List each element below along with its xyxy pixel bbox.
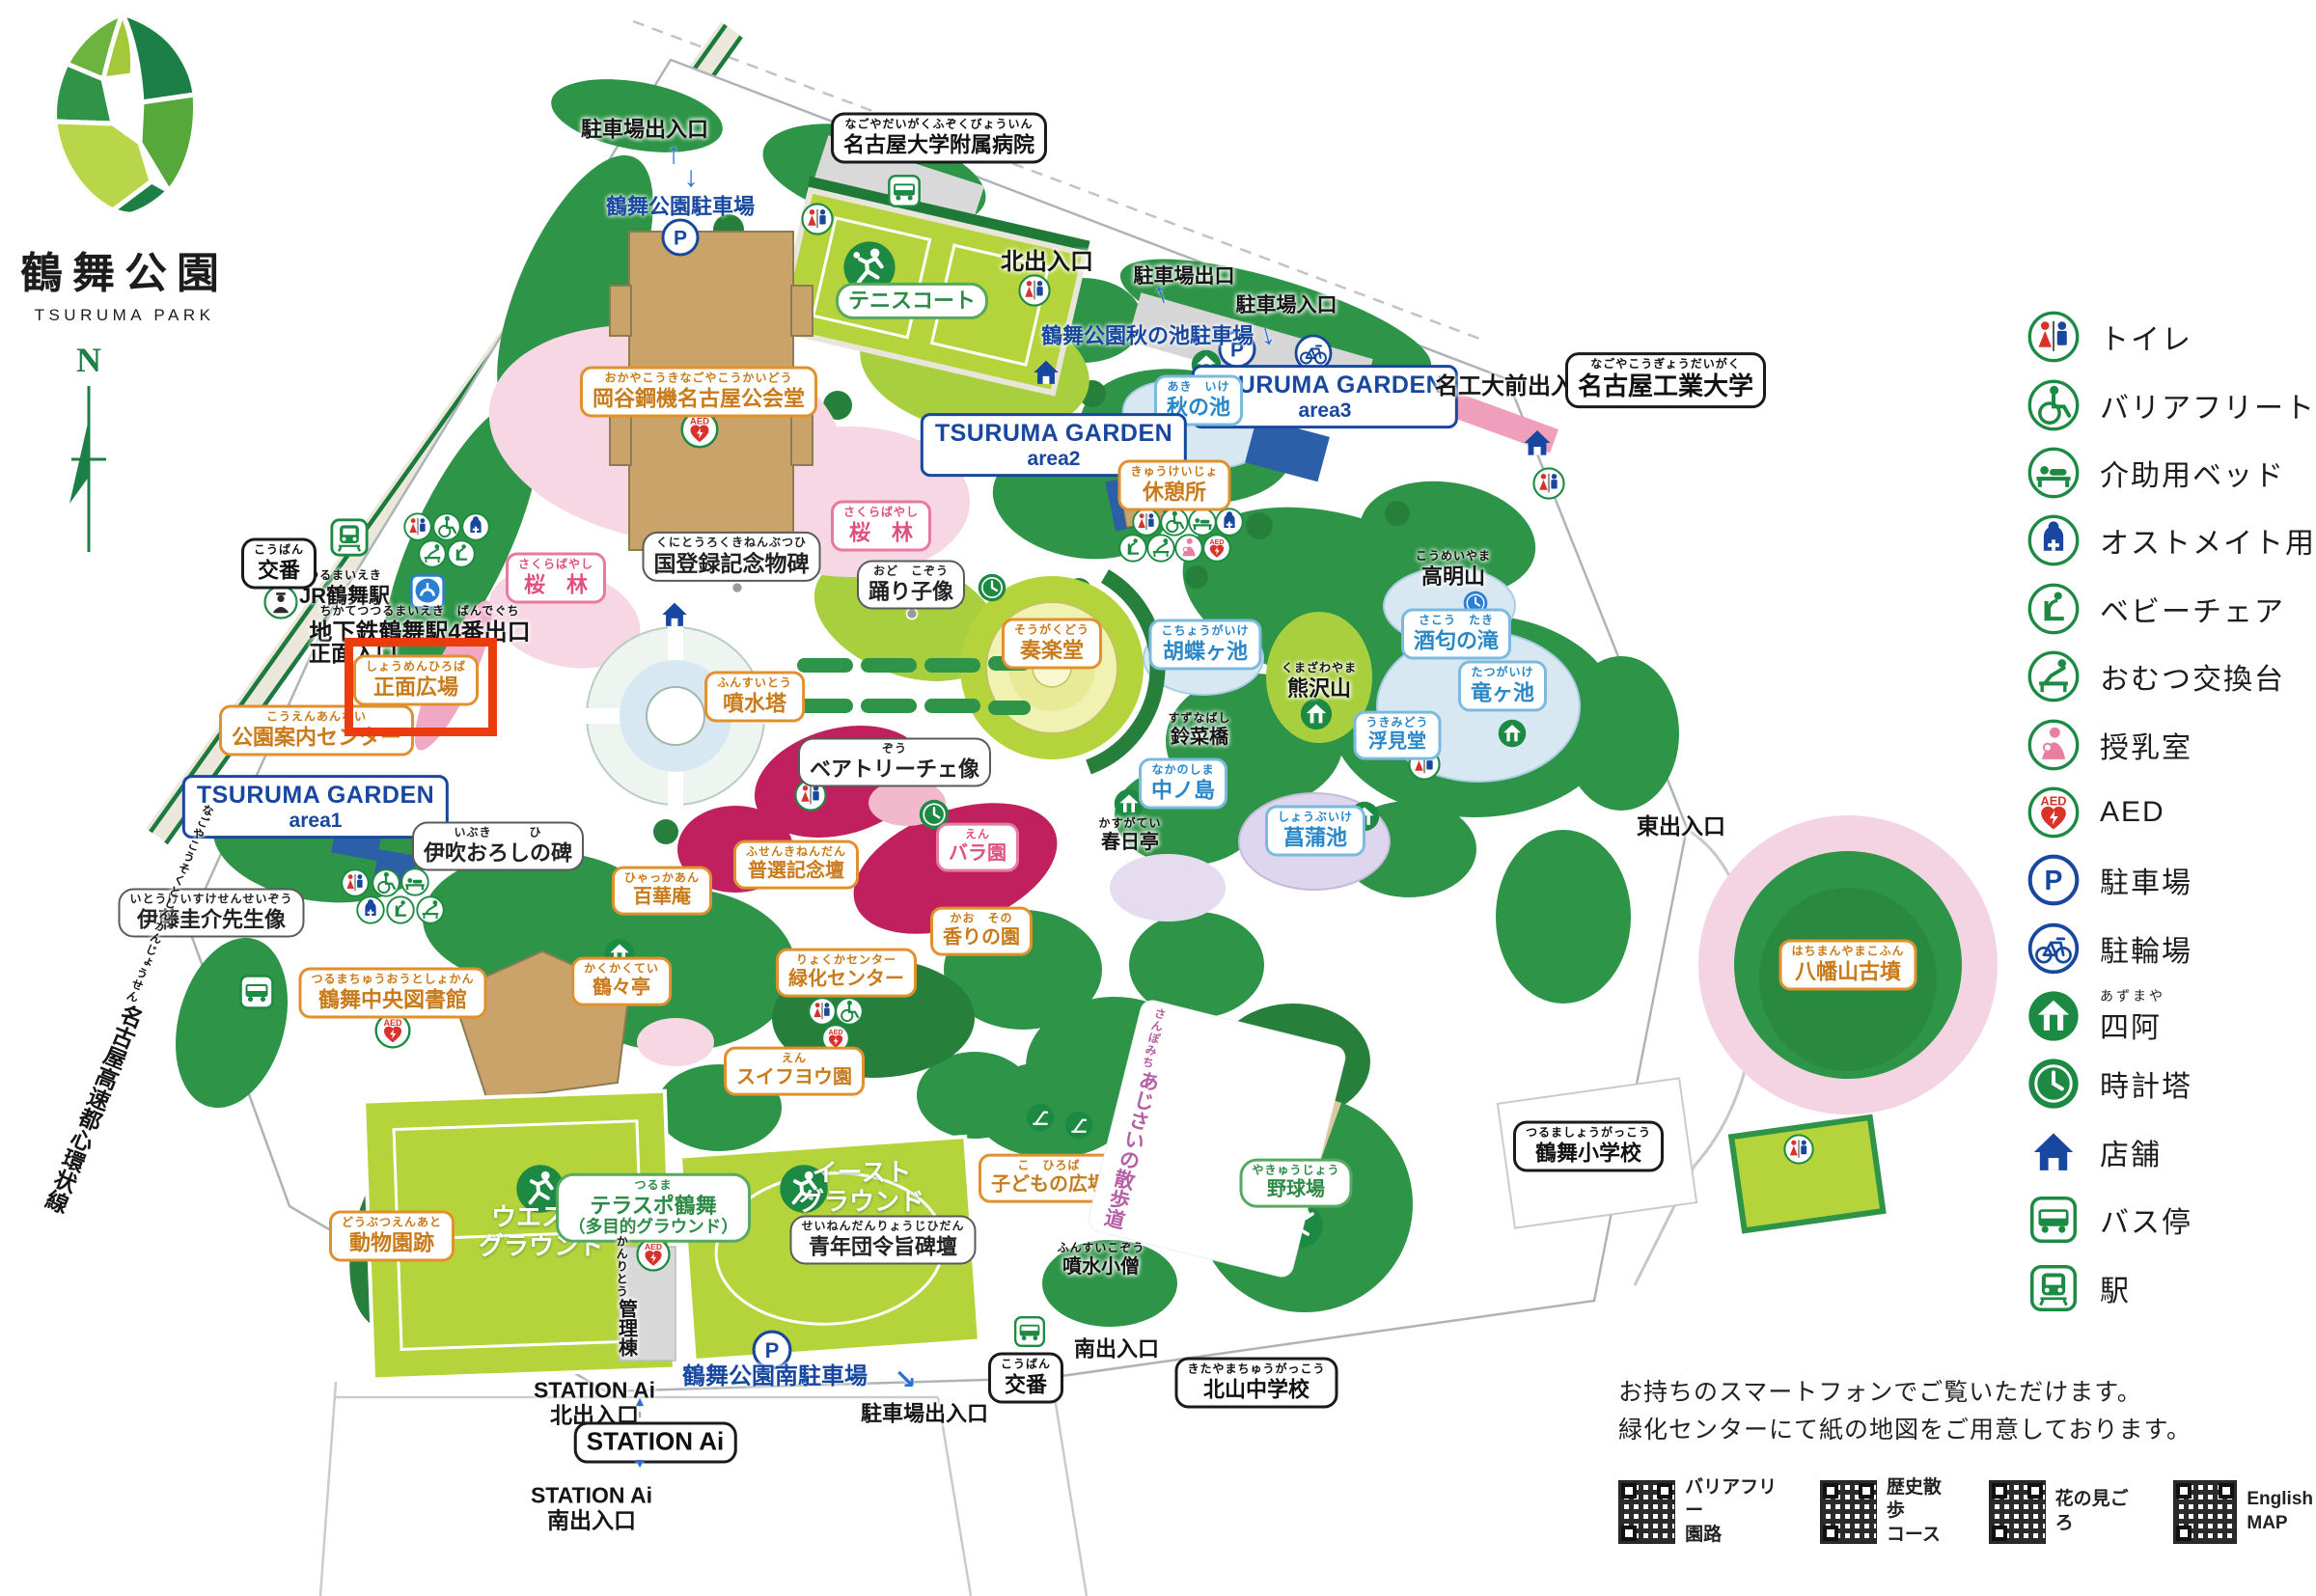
legend-label: 駐車場 bbox=[2100, 859, 2192, 901]
qr-label: バリアフリー 園路 bbox=[1685, 1476, 1783, 1548]
qr-item: 歴史散歩 コース bbox=[1820, 1476, 1952, 1548]
bus-icon bbox=[2026, 1193, 2081, 1247]
legend-item-shop: 店舗 bbox=[2026, 1118, 2316, 1186]
park-map-background bbox=[0, 0, 2316, 1596]
park-title-jp: 鶴舞公園 bbox=[14, 238, 235, 300]
legend: トイレバリアフリートイレ介助用ベッドオストメイト用設備ベビーチェアおむつ交換台授… bbox=[2026, 303, 2316, 1322]
legend-label: バリアフリートイレ bbox=[2100, 384, 2316, 427]
legend-label: 駅 bbox=[2100, 1267, 2131, 1309]
legend-label: 時計塔 bbox=[2100, 1062, 2192, 1105]
compass-north-label: N bbox=[50, 340, 127, 380]
parking-icon: P bbox=[2026, 853, 2081, 907]
legend-label: AED bbox=[2100, 796, 2165, 829]
compass-needle-icon bbox=[50, 380, 127, 559]
legend-item-azumaya: あずまや四阿 bbox=[2026, 982, 2316, 1050]
diaper-icon bbox=[2026, 649, 2081, 703]
legend-label: 駐輪場 bbox=[2100, 927, 2192, 970]
train-icon bbox=[2026, 1261, 2081, 1315]
legend-item-train: 駅 bbox=[2026, 1253, 2316, 1321]
legend-label: オストメイト用設備 bbox=[2100, 519, 2316, 562]
aed-icon: AED bbox=[2026, 785, 2081, 839]
footer-notes: お持ちのスマートフォンでご覧いただけます。 緑化センターにて紙の地図をご用意して… bbox=[1618, 1374, 2313, 1548]
legend-item-toilet: トイレ bbox=[2026, 303, 2316, 371]
legend-item-nursing: 授乳室 bbox=[2026, 710, 2316, 778]
leaf-logo-icon bbox=[45, 8, 205, 220]
clock-icon bbox=[2026, 1057, 2081, 1111]
footer-note-2: 緑化センターにて紙の地図をご用意しております。 bbox=[1618, 1412, 2313, 1449]
legend-label: 店舗 bbox=[2100, 1131, 2162, 1173]
qr-code-icon bbox=[2173, 1480, 2237, 1544]
legend-item-bicycle: 駐輪場 bbox=[2026, 915, 2316, 982]
azumaya-icon bbox=[2026, 989, 2081, 1043]
footer-note-1: お持ちのスマートフォンでご覧いただけます。 bbox=[1618, 1374, 2313, 1412]
legend-label: おむつ交換台 bbox=[2100, 655, 2285, 698]
legend-item-parking: P駐車場 bbox=[2026, 846, 2316, 914]
qr-code-icon bbox=[1989, 1480, 2046, 1544]
park-map-page: 鶴舞公園 TSURUMA PARK N トイレバリアフリートイレ介助用ベッドオス… bbox=[0, 0, 2316, 1596]
legend-label: トイレ bbox=[2100, 316, 2192, 358]
legend-label: ベビーチェア bbox=[2100, 588, 2285, 630]
park-title-en: TSURUMA PARK bbox=[14, 306, 235, 325]
toilet-icon bbox=[2026, 310, 2081, 364]
qr-row: バリアフリー 園路歴史散歩 コース花の見ごろEnglish MAP bbox=[1618, 1476, 2313, 1548]
legend-item-bus: バス停 bbox=[2026, 1186, 2316, 1253]
nursing-icon bbox=[2026, 718, 2081, 772]
qr-item: バリアフリー 園路 bbox=[1618, 1476, 1783, 1548]
legend-item-wheelchair: バリアフリートイレ bbox=[2026, 371, 2316, 438]
legend-item-diaper: おむつ交換台 bbox=[2026, 643, 2316, 710]
park-logo: 鶴舞公園 TSURUMA PARK bbox=[14, 8, 235, 325]
legend-item-clock: 時計塔 bbox=[2026, 1050, 2316, 1117]
legend-item-bed: 介助用ベッド bbox=[2026, 439, 2316, 507]
legend-item-babychair: ベビーチェア bbox=[2026, 575, 2316, 643]
legend-label: 授乳室 bbox=[2100, 724, 2192, 766]
ostomate-icon bbox=[2026, 513, 2081, 567]
qr-label: 歴史散歩 コース bbox=[1887, 1476, 1952, 1548]
legend-label: あずまや四阿 bbox=[2100, 986, 2165, 1046]
qr-item: English MAP bbox=[2173, 1480, 2313, 1544]
bicycle-icon bbox=[2026, 922, 2081, 976]
compass: N bbox=[50, 340, 127, 564]
shop-icon bbox=[2026, 1125, 2081, 1179]
qr-label: English MAP bbox=[2247, 1488, 2313, 1535]
svg-text:P: P bbox=[2045, 866, 2063, 896]
qr-code-icon bbox=[1618, 1480, 1675, 1544]
qr-label: 花の見ごろ bbox=[2055, 1488, 2137, 1535]
legend-label: バス停 bbox=[2100, 1198, 2192, 1241]
qr-item: 花の見ごろ bbox=[1989, 1480, 2137, 1544]
legend-item-ostomate: オストメイト用設備 bbox=[2026, 507, 2316, 574]
wheelchair-icon bbox=[2026, 378, 2081, 432]
babychair-icon bbox=[2026, 582, 2081, 636]
svg-text:AED: AED bbox=[2040, 793, 2066, 808]
legend-label: 介助用ベッド bbox=[2100, 452, 2285, 494]
bed-icon bbox=[2026, 446, 2081, 500]
legend-item-aed: AEDAED bbox=[2026, 779, 2316, 846]
qr-code-icon bbox=[1820, 1480, 1877, 1544]
